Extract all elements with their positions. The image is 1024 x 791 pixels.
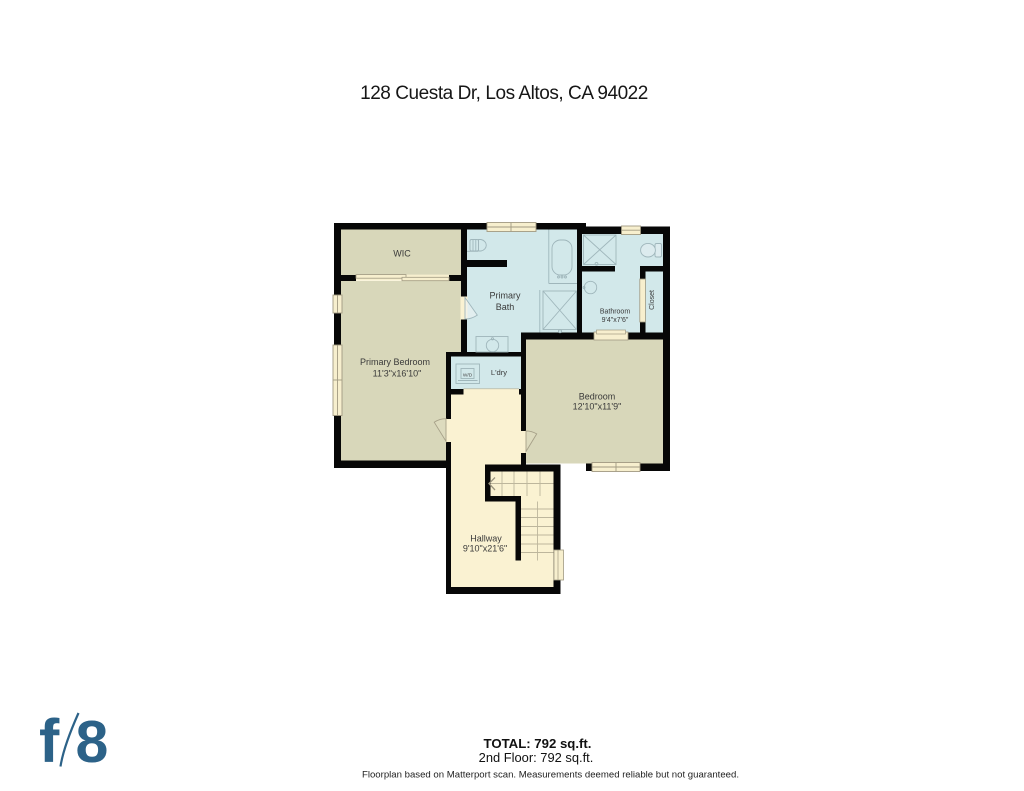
svg-text:11'3"x16'10": 11'3"x16'10": [373, 369, 422, 379]
svg-text:8: 8: [76, 709, 109, 775]
svg-text:Bath: Bath: [496, 302, 515, 312]
svg-text:W/D: W/D: [463, 373, 473, 379]
svg-text:f: f: [39, 707, 60, 775]
svg-text:WIC: WIC: [393, 249, 411, 259]
svg-text:Primary Bedroom: Primary Bedroom: [360, 357, 430, 367]
svg-text:9'4"x7'6": 9'4"x7'6": [602, 317, 629, 324]
svg-text:TOTAL: 792 sq.ft.: TOTAL: 792 sq.ft.: [484, 736, 592, 751]
svg-text:9'10"x21'6": 9'10"x21'6": [463, 544, 507, 554]
svg-text:12'10"x11'9": 12'10"x11'9": [573, 402, 622, 412]
svg-text:Floorplan based on Matterport: Floorplan based on Matterport scan. Meas…: [362, 770, 739, 781]
svg-text:128 Cuesta Dr, Los Altos, CA 9: 128 Cuesta Dr, Los Altos, CA 94022: [360, 83, 648, 104]
svg-text:Primary: Primary: [490, 291, 521, 301]
svg-text:Closet: Closet: [649, 290, 656, 310]
svg-text:Hallway: Hallway: [470, 534, 502, 544]
svg-text:L'dry: L'dry: [491, 368, 507, 377]
svg-text:Bedroom: Bedroom: [579, 392, 616, 402]
svg-text:Bathroom: Bathroom: [600, 309, 631, 316]
svg-text:2nd Floor: 792 sq.ft.: 2nd Floor: 792 sq.ft.: [479, 750, 594, 765]
